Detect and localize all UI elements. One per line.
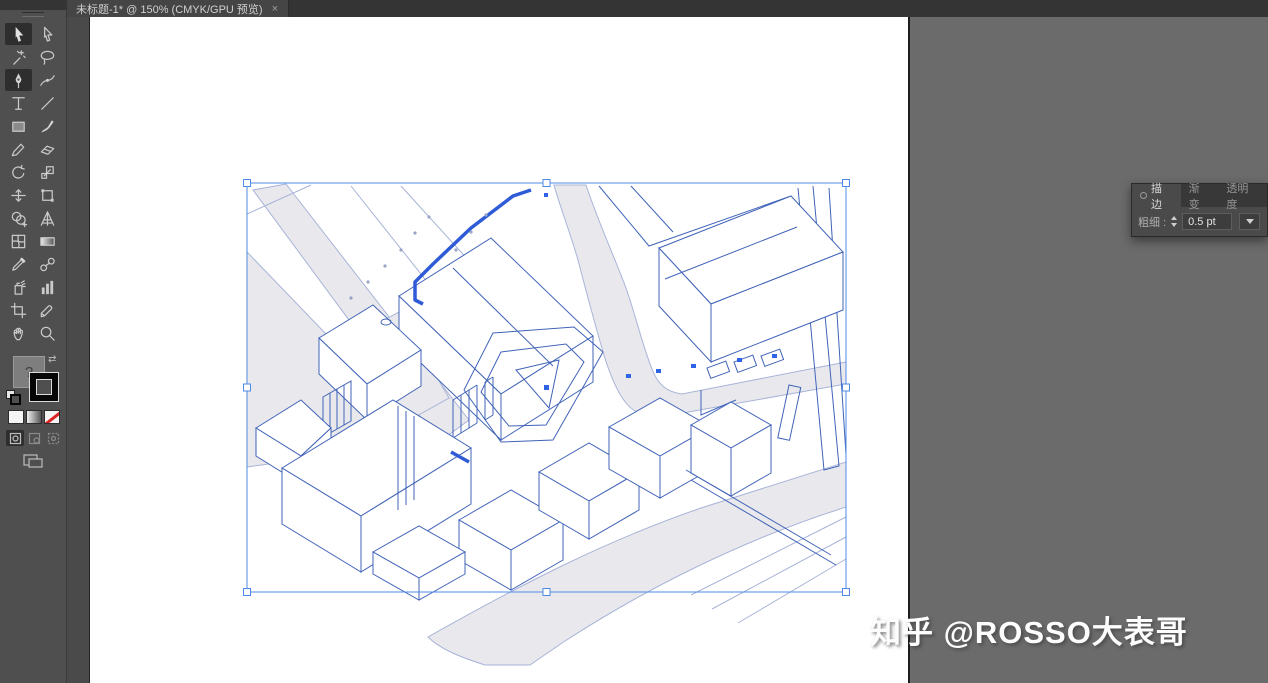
tab-close-icon[interactable]: ×: [272, 3, 278, 15]
eraser-tool[interactable]: [34, 138, 61, 160]
panel-tab-label: 渐变: [1189, 180, 1211, 212]
watermark-text: 知乎 @ROSSO大表哥: [870, 607, 1188, 652]
illustrator-window: 未标题-1* @ 150% (CMYK/GPU 预览) × ? ⇄: [0, 0, 1268, 683]
width-tool[interactable]: [5, 184, 32, 206]
swatch-buttons: [8, 410, 60, 424]
eyedropper-tool[interactable]: [5, 253, 32, 275]
hand-tool[interactable]: [5, 322, 32, 344]
tools-panel: ? ⇄: [0, 10, 67, 683]
handle-bottom-center: [543, 589, 550, 596]
rectangle-tool[interactable]: [5, 115, 32, 137]
panel-tab-stroke[interactable]: 描边: [1132, 184, 1181, 207]
toolbar-grip[interactable]: [0, 10, 66, 19]
pencil-tool[interactable]: [5, 138, 32, 160]
color-controls: ? ⇄: [0, 354, 66, 474]
handle-middle-right: [843, 384, 850, 391]
tool-grid: [0, 19, 66, 344]
chevron-down-icon: [1246, 219, 1254, 224]
paintbrush-tool[interactable]: [34, 115, 61, 137]
selection-center-point: [544, 385, 549, 390]
stroke-panel: 描边渐变透明度 粗细 : 0.5 pt: [1131, 183, 1268, 237]
stroke-color-proxy[interactable]: [30, 373, 58, 401]
artboard-canvas[interactable]: [90, 17, 908, 683]
color-button[interactable]: [8, 410, 24, 424]
handle-top-center: [543, 180, 550, 187]
default-fill-stroke-icon[interactable]: [6, 390, 18, 402]
stroke-panel-tabs: 描边渐变透明度: [1132, 184, 1267, 207]
gradient-tool[interactable]: [34, 230, 61, 252]
draw-behind-mode-icon[interactable]: [25, 430, 43, 446]
rotate-tool[interactable]: [5, 161, 32, 183]
artboard-tool[interactable]: [5, 299, 32, 321]
handle-middle-left: [244, 384, 251, 391]
handle-top-right: [843, 180, 850, 187]
shape-builder-tool[interactable]: [5, 207, 32, 229]
pasteboard: [67, 17, 90, 683]
scale-tool[interactable]: [34, 161, 61, 183]
type-tool[interactable]: [5, 92, 32, 114]
panel-tab-gradient[interactable]: 渐变: [1181, 184, 1219, 207]
line-segment-tool[interactable]: [34, 92, 61, 114]
slice-tool[interactable]: [34, 299, 61, 321]
column-graph-tool[interactable]: [34, 276, 61, 298]
stroke-weight-label: 粗细 :: [1138, 214, 1166, 230]
symbol-sprayer-tool[interactable]: [5, 276, 32, 298]
handle-bottom-left: [244, 589, 251, 596]
stepper-up-icon: [1171, 216, 1177, 220]
draw-normal-mode-icon[interactable]: [6, 430, 24, 446]
handle-top-left: [244, 180, 251, 187]
panel-tab-opacity[interactable]: 透明度: [1218, 184, 1267, 207]
drawing-mode-buttons: [6, 430, 62, 446]
magic-wand-tool[interactable]: [5, 46, 32, 68]
direct-selection-tool[interactable]: [34, 23, 61, 45]
artwork: [90, 17, 908, 683]
none-button[interactable]: [44, 410, 60, 424]
application-background: [908, 17, 1268, 683]
panel-tab-indicator-icon: [1140, 192, 1147, 199]
pen-tool[interactable]: [5, 69, 32, 91]
swap-fill-stroke-icon[interactable]: ⇄: [48, 354, 60, 366]
document-tab-title: 未标题-1* @ 150% (CMYK/GPU 预览): [76, 1, 263, 17]
document-tab-bar: 未标题-1* @ 150% (CMYK/GPU 预览) ×: [0, 0, 1268, 17]
perspective-grid-tool[interactable]: [34, 207, 61, 229]
screen-mode-icon[interactable]: [22, 452, 44, 470]
free-transform-tool[interactable]: [34, 184, 61, 206]
mesh-tool[interactable]: [5, 230, 32, 252]
lasso-tool[interactable]: [34, 46, 61, 68]
draw-inside-mode-icon[interactable]: [44, 430, 62, 446]
stroke-weight-dropdown[interactable]: [1239, 213, 1260, 230]
gradient-button[interactable]: [26, 410, 42, 424]
stepper-down-icon: [1171, 223, 1177, 227]
blend-tool[interactable]: [34, 253, 61, 275]
handle-bottom-right: [843, 589, 850, 596]
stroke-weight-input[interactable]: 0.5 pt: [1182, 213, 1232, 230]
selection-tool[interactable]: [5, 23, 32, 45]
stroke-weight-stepper[interactable]: [1169, 216, 1179, 227]
curvature-tool[interactable]: [34, 69, 61, 91]
document-tab[interactable]: 未标题-1* @ 150% (CMYK/GPU 预览) ×: [67, 0, 289, 17]
panel-tab-label: 描边: [1151, 180, 1173, 212]
panel-tab-label: 透明度: [1226, 180, 1259, 212]
zoom-tool[interactable]: [34, 322, 61, 344]
